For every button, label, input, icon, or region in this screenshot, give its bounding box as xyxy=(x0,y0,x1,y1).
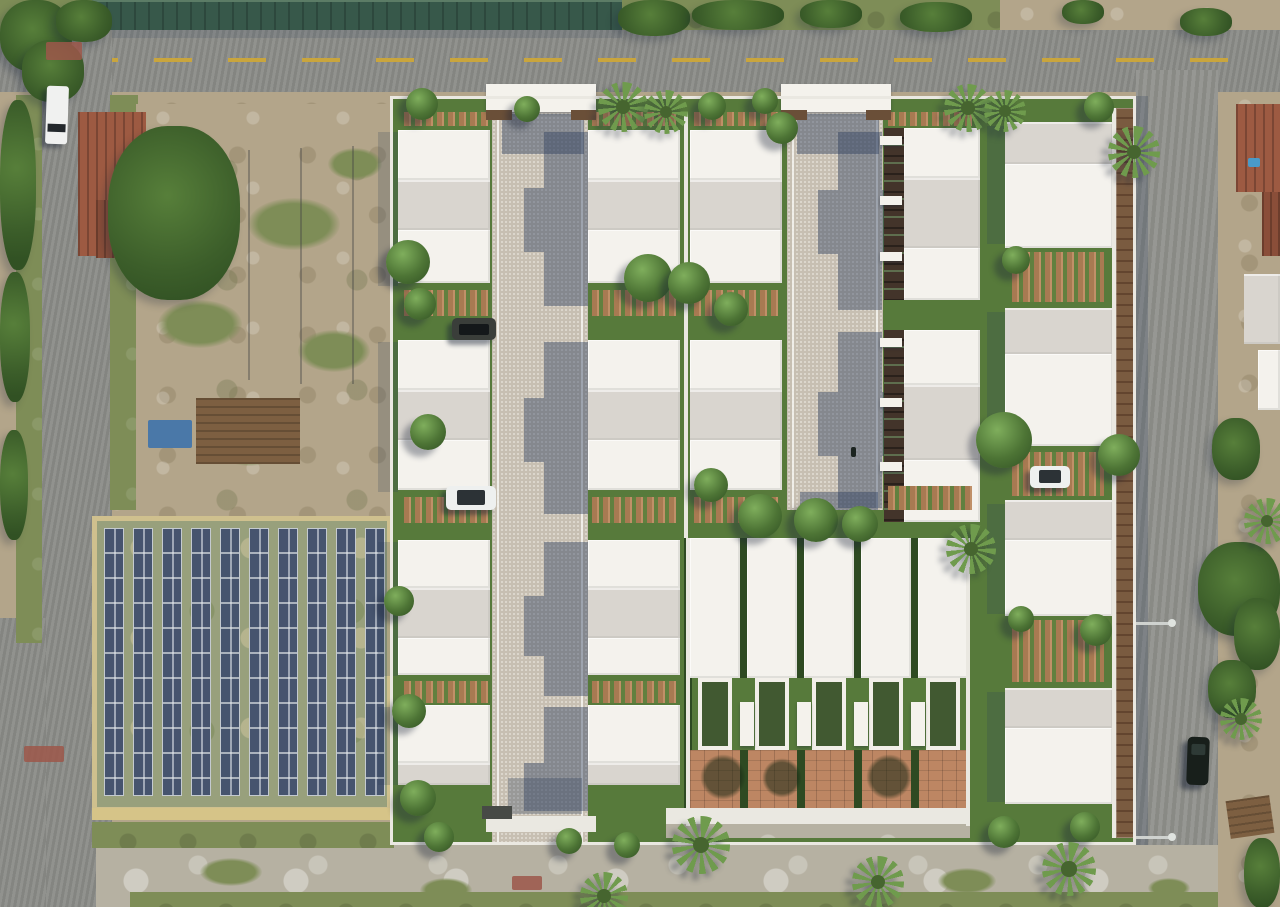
lot-tree xyxy=(108,126,240,300)
tree xyxy=(1098,434,1140,476)
tree xyxy=(404,288,436,320)
solar-panel-column xyxy=(104,528,124,796)
palm xyxy=(1042,842,1096,896)
treem xyxy=(1234,598,1280,670)
parked-dark-car xyxy=(452,318,496,340)
tile2 xyxy=(1262,192,1280,256)
solar xyxy=(220,528,240,796)
tree xyxy=(392,694,426,728)
tree xyxy=(1070,812,1100,842)
parked-black-car xyxy=(1186,737,1210,786)
tree xyxy=(556,828,582,854)
tree xyxy=(738,494,782,538)
tree xyxy=(400,780,436,816)
driveway-white-car xyxy=(1030,466,1070,488)
tree xyxy=(766,112,798,144)
palm xyxy=(946,524,996,574)
treem xyxy=(618,0,690,36)
tree xyxy=(614,832,640,858)
grassb xyxy=(298,330,370,372)
palm xyxy=(644,90,688,134)
solar xyxy=(249,528,269,796)
tree xyxy=(514,96,540,122)
grassb xyxy=(200,858,262,886)
solar xyxy=(162,528,182,796)
treem xyxy=(0,272,30,402)
grassb xyxy=(248,198,340,250)
white-truck xyxy=(45,86,69,145)
gray-shed xyxy=(1226,795,1275,839)
tree xyxy=(1084,92,1114,122)
green-fence xyxy=(92,0,622,30)
solar xyxy=(336,528,356,796)
tree xyxy=(752,88,778,114)
parked-white-car xyxy=(446,486,496,510)
treem xyxy=(1180,8,1232,36)
treem xyxy=(900,2,972,32)
neighbor-pool xyxy=(1248,158,1260,167)
fence-shadow xyxy=(92,30,622,38)
treem xyxy=(1062,0,1104,24)
tree xyxy=(988,816,1020,848)
tree xyxy=(406,88,438,120)
top-right-scrub xyxy=(1000,0,1280,32)
pole xyxy=(300,148,302,384)
solar xyxy=(307,528,327,796)
tree xyxy=(668,262,710,304)
palm xyxy=(852,856,904,907)
treem xyxy=(56,0,112,42)
tree xyxy=(714,292,748,326)
treem xyxy=(692,0,784,30)
roofg xyxy=(1244,274,1280,344)
neighbor-house-roof xyxy=(1236,104,1280,192)
tree xyxy=(698,92,726,120)
pole xyxy=(248,150,250,380)
pedestrian xyxy=(851,447,856,457)
tree xyxy=(1002,246,1030,274)
solar xyxy=(278,528,298,796)
solar xyxy=(191,528,211,796)
tree xyxy=(424,822,454,852)
speed-bump xyxy=(46,42,82,60)
palm-tree xyxy=(598,82,648,132)
solar xyxy=(133,528,153,796)
tree xyxy=(384,586,414,616)
palm xyxy=(672,816,730,874)
palm xyxy=(984,90,1026,132)
tree xyxy=(976,412,1032,468)
palm xyxy=(1108,126,1160,178)
wood-shack xyxy=(196,398,300,464)
redpatch xyxy=(512,876,542,890)
grassb xyxy=(328,148,382,180)
wall-shadow-right-road xyxy=(1136,96,1148,845)
treem xyxy=(1244,838,1280,907)
road-centerline xyxy=(80,58,1260,62)
perimeter-wall xyxy=(390,96,1136,845)
grassb xyxy=(158,300,242,348)
bottom-verge xyxy=(130,892,1280,907)
tree xyxy=(624,254,672,302)
blue-tarp xyxy=(148,420,192,448)
tree xyxy=(842,506,878,542)
tree xyxy=(1008,606,1034,632)
grass xyxy=(92,822,394,848)
palm xyxy=(1220,698,1262,740)
tree xyxy=(1080,614,1112,646)
tree xyxy=(794,498,838,542)
roofw xyxy=(1258,350,1280,410)
grassb xyxy=(938,868,996,894)
treem xyxy=(1212,418,1260,480)
tree xyxy=(386,240,430,284)
tree xyxy=(410,414,446,450)
tree xyxy=(694,468,728,502)
redpatch xyxy=(24,746,64,762)
left-road-lower xyxy=(0,618,46,907)
treem xyxy=(800,0,862,28)
pole xyxy=(352,146,354,384)
aerial-photo-scene xyxy=(0,0,1280,907)
solar-south-wall xyxy=(92,808,394,820)
treem xyxy=(0,100,36,270)
treem xyxy=(0,430,28,540)
